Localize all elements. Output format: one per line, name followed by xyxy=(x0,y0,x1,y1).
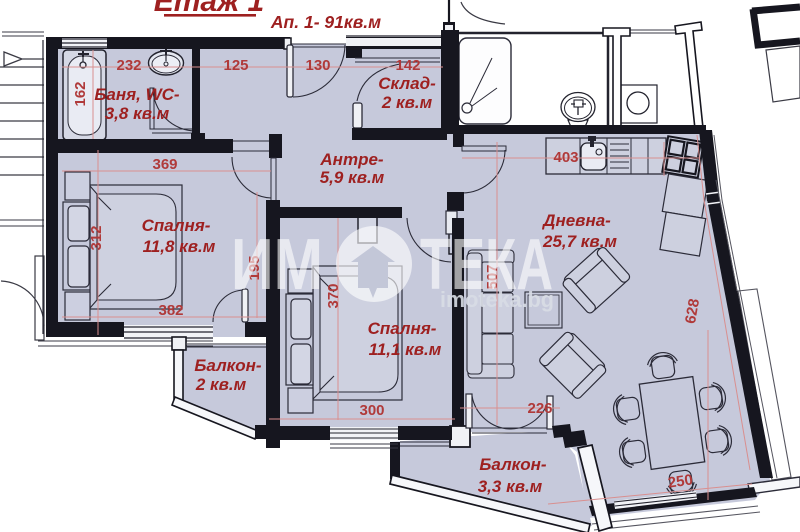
svg-text:3,3 кв.м: 3,3 кв.м xyxy=(478,477,543,496)
svg-text:Балкон-: Балкон- xyxy=(194,356,262,375)
svg-text:130: 130 xyxy=(305,57,330,74)
svg-text:312: 312 xyxy=(88,225,105,250)
svg-text:2 кв.м: 2 кв.м xyxy=(381,93,433,112)
svg-text:Склад-: Склад- xyxy=(378,74,436,93)
svg-text:ИМ: ИМ xyxy=(231,225,323,305)
svg-text:25,7 кв.м: 25,7 кв.м xyxy=(542,232,617,251)
svg-text:125: 125 xyxy=(223,57,248,74)
svg-text:Спалня-: Спалня- xyxy=(142,216,211,235)
svg-text:142: 142 xyxy=(395,57,420,74)
svg-text:232: 232 xyxy=(116,57,141,74)
svg-text:403: 403 xyxy=(553,149,578,166)
svg-text:Баня, WC-: Баня, WC- xyxy=(94,85,180,104)
svg-text:226: 226 xyxy=(527,400,552,417)
svg-text:5,9 кв.м: 5,9 кв.м xyxy=(320,168,385,187)
svg-text:300: 300 xyxy=(359,402,384,419)
svg-text:3,8 кв.м: 3,8 кв.м xyxy=(105,104,170,123)
svg-text:Антре-: Антре- xyxy=(319,150,383,169)
svg-text:369: 369 xyxy=(152,156,177,173)
svg-text:Балкон-: Балкон- xyxy=(479,455,547,474)
svg-text:250: 250 xyxy=(667,471,694,491)
svg-text:11,1 кв.м: 11,1 кв.м xyxy=(369,340,442,359)
svg-text:Спалня-: Спалня- xyxy=(368,319,437,338)
svg-text:382: 382 xyxy=(158,302,183,319)
svg-text:11,8 кв.м: 11,8 кв.м xyxy=(143,237,216,256)
svg-text:370: 370 xyxy=(325,283,342,308)
svg-text:imoteka.bg: imoteka.bg xyxy=(440,287,554,312)
svg-text:Ап. 1- 91кв.м: Ап. 1- 91кв.м xyxy=(270,12,381,32)
svg-text:2 кв.м: 2 кв.м xyxy=(195,375,247,394)
svg-text:162: 162 xyxy=(72,81,89,106)
